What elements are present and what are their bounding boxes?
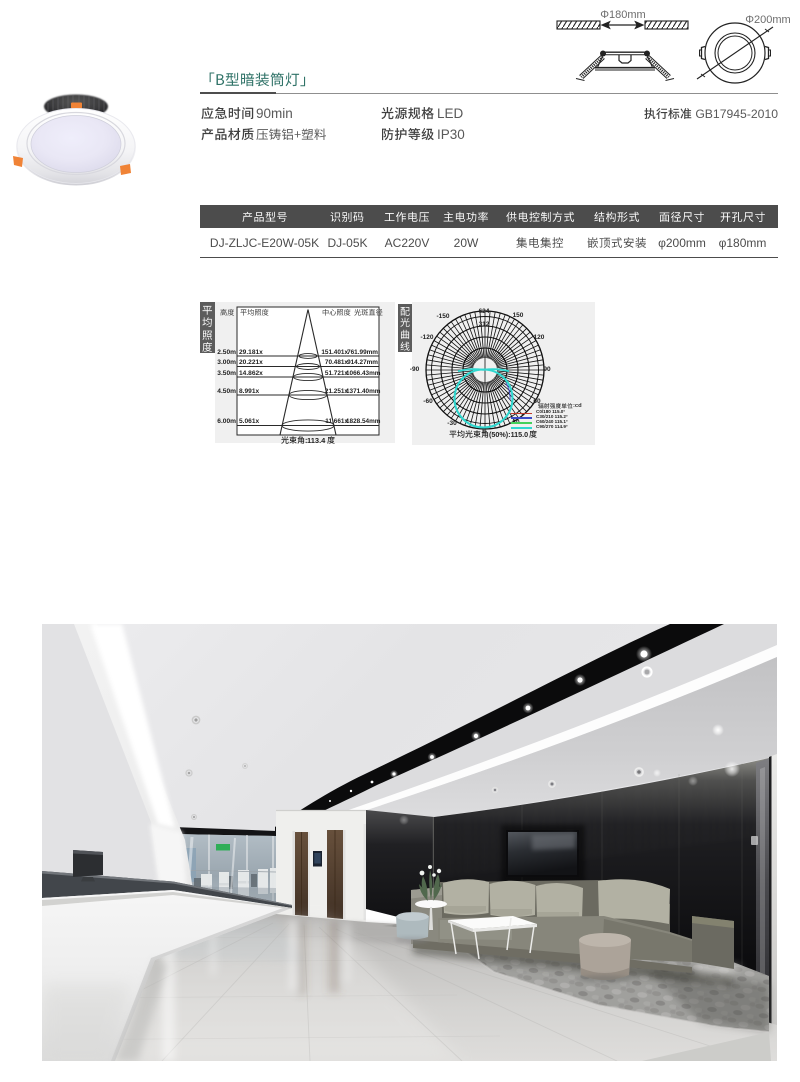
svg-text:Φ200mm: Φ200mm — [745, 14, 790, 26]
svg-text:Φ180mm: Φ180mm — [600, 9, 645, 21]
